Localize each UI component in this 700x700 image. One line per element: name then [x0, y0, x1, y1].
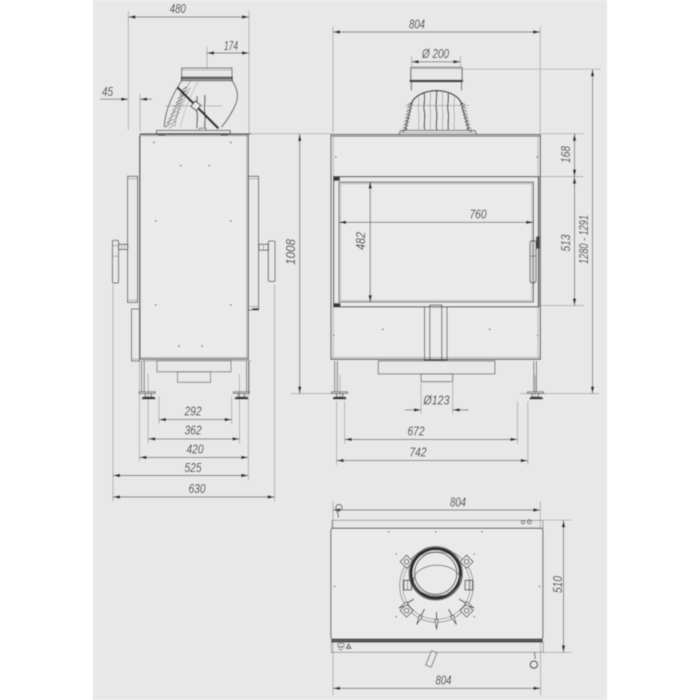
- svg-text:420: 420: [187, 442, 205, 457]
- svg-text:1280 - 1291: 1280 - 1291: [576, 215, 591, 264]
- svg-text:168: 168: [558, 145, 573, 163]
- svg-text:Ø123: Ø123: [423, 393, 450, 408]
- svg-text:742: 742: [410, 444, 428, 459]
- svg-text:174: 174: [224, 38, 238, 53]
- svg-text:480: 480: [170, 1, 187, 16]
- svg-text:45: 45: [102, 84, 114, 99]
- svg-text:630: 630: [189, 481, 207, 496]
- svg-text:510: 510: [550, 575, 565, 593]
- svg-text:292: 292: [184, 404, 202, 419]
- svg-text:513: 513: [558, 234, 573, 252]
- svg-text:1008: 1008: [283, 238, 298, 265]
- svg-text:525: 525: [185, 460, 203, 475]
- svg-text:804: 804: [409, 17, 425, 32]
- svg-text:804: 804: [450, 494, 466, 509]
- svg-text:760: 760: [470, 207, 488, 222]
- svg-text:Ø 200: Ø 200: [421, 46, 449, 61]
- svg-text:362: 362: [185, 423, 203, 438]
- svg-text:804: 804: [436, 672, 452, 687]
- svg-text:672: 672: [408, 423, 426, 438]
- svg-text:482: 482: [353, 231, 368, 250]
